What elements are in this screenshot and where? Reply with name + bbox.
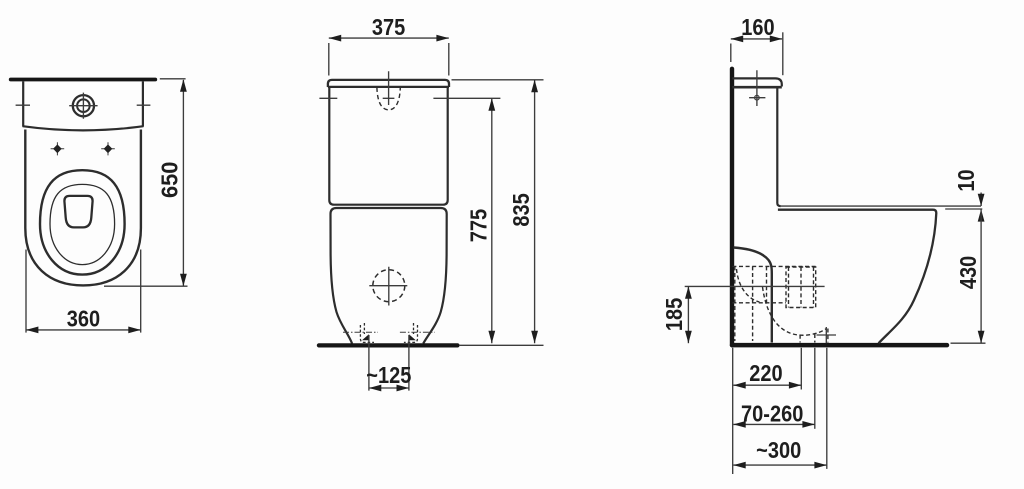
svg-text:70-260: 70-260 [741, 400, 803, 427]
svg-text:430: 430 [955, 256, 982, 289]
svg-text:185: 185 [661, 298, 688, 331]
svg-text:650: 650 [157, 162, 183, 198]
svg-text:220: 220 [749, 360, 782, 387]
svg-text:~300: ~300 [756, 437, 801, 464]
svg-text:375: 375 [372, 14, 405, 41]
svg-text:775: 775 [465, 209, 492, 242]
svg-text:10: 10 [953, 169, 980, 191]
svg-text:835: 835 [508, 193, 535, 226]
svg-text:~125: ~125 [366, 361, 411, 388]
svg-text:160: 160 [741, 13, 774, 40]
svg-text:360: 360 [67, 305, 100, 332]
